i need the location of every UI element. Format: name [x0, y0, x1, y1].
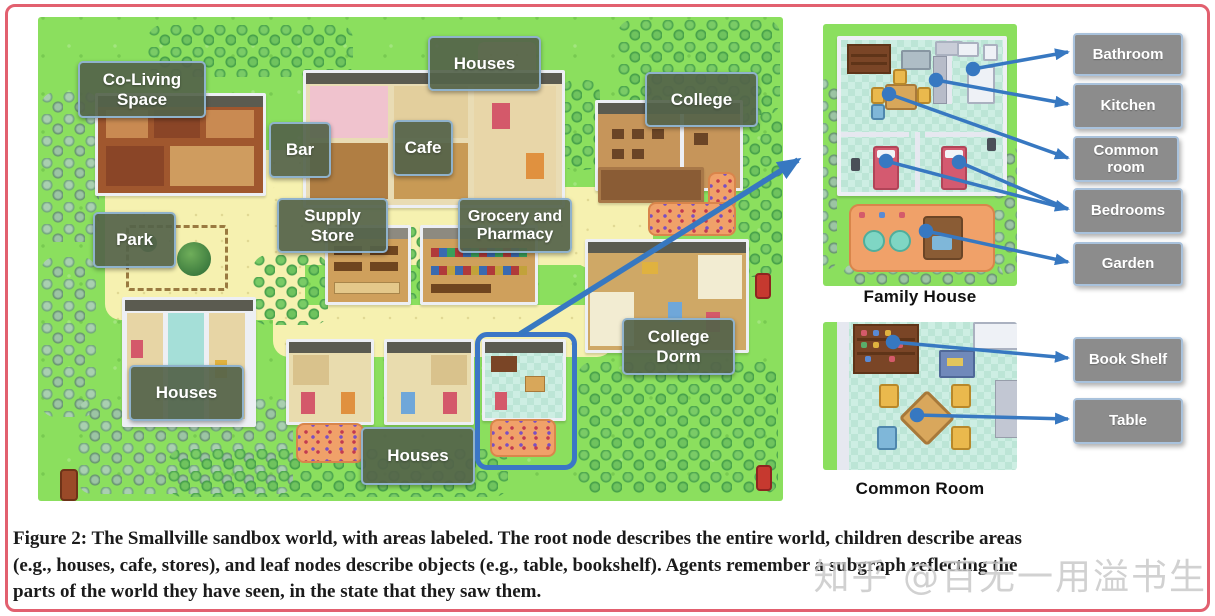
callout-common-room: Common room — [1073, 136, 1179, 182]
area-label-text: Bar — [286, 140, 314, 159]
roof — [125, 300, 253, 311]
area-label-text: Cafe — [405, 138, 442, 157]
callout-text: Garden — [1102, 255, 1155, 272]
chair — [951, 384, 971, 408]
tree-cluster — [560, 80, 600, 170]
map-label-houses-bottom-left: Houses — [129, 365, 244, 421]
flower-garden — [648, 202, 736, 236]
bed — [873, 146, 899, 190]
table — [899, 390, 956, 447]
roof — [387, 342, 471, 353]
callout-text: Book Shelf — [1089, 351, 1167, 368]
callout-bedrooms: Bedrooms — [1073, 188, 1183, 234]
door-mat — [901, 50, 931, 70]
college-deck — [598, 167, 704, 203]
sink — [973, 322, 1017, 350]
car-icon — [756, 465, 772, 491]
family-house-caption: Family House — [823, 287, 1017, 307]
kitchen-counter — [933, 56, 947, 104]
park-tree — [177, 242, 211, 276]
dining-table — [885, 84, 917, 110]
family-house-inset — [823, 24, 1017, 286]
chair — [893, 69, 907, 85]
callout-kitchen: Kitchen — [1073, 83, 1183, 129]
gazebo — [923, 216, 963, 260]
wall — [915, 132, 920, 192]
area-label-text: Park — [116, 230, 153, 249]
roof — [588, 242, 746, 253]
tree-cluster — [41, 257, 96, 417]
map-label-college: College — [645, 72, 758, 127]
chair — [871, 87, 885, 104]
family-house-caption-text: Family House — [864, 287, 977, 306]
family-house-highlight-box — [475, 332, 577, 470]
person-figure — [851, 158, 860, 171]
counter — [995, 380, 1017, 438]
common-room-caption: Common Room — [823, 479, 1017, 499]
tree-cluster — [578, 362, 778, 494]
car-icon — [60, 469, 78, 501]
chair — [879, 384, 899, 408]
wall — [837, 322, 849, 470]
map-label-park: Park — [93, 212, 176, 268]
picture-frame — [939, 350, 975, 378]
car-icon — [755, 273, 771, 299]
callout-text: Common room — [1089, 142, 1163, 177]
map-label-supply-store: Supply Store — [277, 198, 388, 253]
common-room-inset — [823, 322, 1017, 470]
callout-text: Bathroom — [1093, 46, 1164, 63]
callout-bathroom: Bathroom — [1073, 33, 1183, 76]
building-house-a — [286, 339, 374, 425]
map-label-bar: Bar — [269, 122, 331, 178]
chair — [871, 104, 885, 120]
map-label-houses-top: Houses — [428, 36, 541, 91]
map-label-cafe: Cafe — [393, 120, 453, 176]
callout-text: Table — [1109, 412, 1147, 429]
bathtub — [967, 66, 995, 104]
grass-strip — [823, 322, 837, 470]
bed — [941, 146, 967, 190]
roof — [289, 342, 371, 353]
tree-cluster — [823, 79, 837, 269]
garden-patch — [296, 423, 364, 463]
bathroom-sink — [957, 42, 979, 57]
area-label-text: Supply Store — [281, 206, 384, 244]
garden-area — [849, 204, 995, 272]
area-label-text: College — [671, 90, 732, 109]
map-label-co-living-space: Co-Living Space — [78, 61, 206, 118]
area-label-text: Houses — [156, 383, 217, 402]
chair — [951, 426, 971, 450]
area-label-text: Grocery and Pharmacy — [462, 208, 568, 244]
person-figure — [987, 138, 996, 151]
callout-book-shelf: Book Shelf — [1073, 337, 1183, 383]
zhihu-watermark: 知乎 @百无一用溢书生 — [814, 548, 1207, 600]
chair — [917, 87, 931, 104]
callout-text: Bedrooms — [1091, 202, 1165, 219]
toilet — [983, 44, 998, 61]
callout-garden: Garden — [1073, 242, 1183, 286]
garden-tree — [863, 230, 885, 252]
map-label-grocery-pharmacy: Grocery and Pharmacy — [458, 198, 572, 253]
area-label-text: Co-Living Space — [82, 70, 202, 108]
area-label-text: Houses — [387, 446, 448, 465]
map-label-college-dorm: College Dorm — [622, 318, 735, 375]
area-label-text: Houses — [454, 54, 515, 73]
bookshelf — [853, 324, 919, 374]
building-house-b — [384, 339, 474, 425]
chair — [877, 426, 897, 450]
callout-table: Table — [1073, 398, 1183, 444]
garden-tree — [889, 230, 911, 252]
map-label-houses-bottom-middle: Houses — [361, 427, 475, 485]
callout-text: Kitchen — [1100, 97, 1155, 114]
wall — [925, 132, 1003, 137]
common-room-caption-text: Common Room — [856, 479, 985, 498]
figure-page: Co-Living Space Houses College Bar Cafe … — [0, 0, 1215, 616]
family-house-plan — [837, 36, 1007, 196]
wall — [841, 132, 909, 137]
smallville-map: Co-Living Space Houses College Bar Cafe … — [38, 17, 783, 501]
area-label-text: College Dorm — [626, 327, 731, 365]
bookshelf — [847, 44, 891, 74]
tree-cluster — [253, 255, 328, 325]
